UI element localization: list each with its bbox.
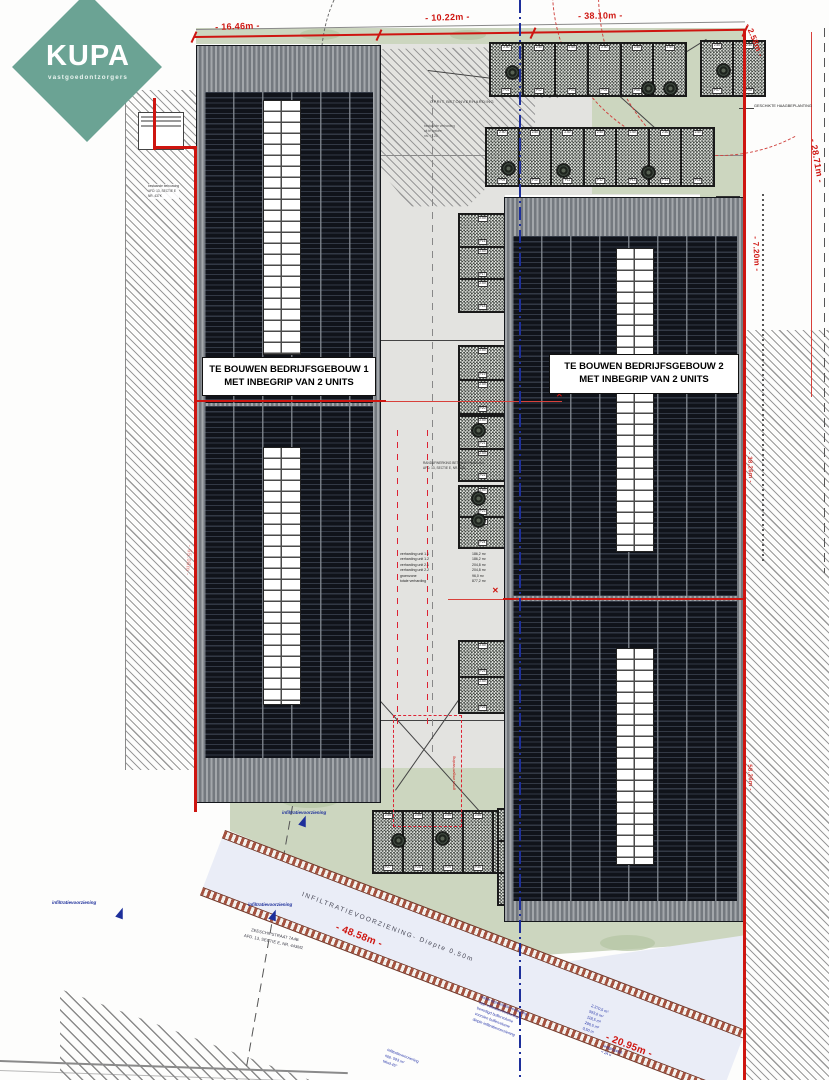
parking-stall: 2.50P30 (463, 811, 493, 873)
stall-id-chip: P11 (563, 178, 572, 184)
infiltration-note-3: infiltratievoorziening (52, 900, 96, 905)
stall-id-chip: P18 (478, 304, 488, 310)
stall-width-chip: 2.50 (477, 418, 487, 424)
beplanting-label: GESCHIKTE HAAGBEPLANTING (754, 104, 812, 108)
tree-icon (557, 164, 570, 177)
stall-id-chip: P14 (660, 178, 670, 184)
stall-id-chip: P22 (478, 473, 488, 479)
parking-stall: 2.50P10 (519, 128, 552, 186)
stall-width-chip: 2.50 (693, 130, 703, 136)
stall-width-chip: 2.50 (477, 216, 487, 222)
stall-width-chip: 2.50 (383, 813, 393, 819)
kupa-logo-brand: KUPA (42, 42, 134, 71)
dim-right-lower: - 58.26m - (746, 760, 753, 791)
site-plan-drawing: TE BOUWEN BEDRIJFSGEBOUW 1 MET INBEGRIP … (0, 0, 829, 1080)
building-2-label-line1: TE BOUWEN BEDRIJFSGEBOUW 2 (550, 361, 738, 374)
stall-id-chip: P04 (599, 88, 609, 94)
hatch-zone-bottomleft (60, 950, 310, 1080)
tree-icon (472, 424, 485, 437)
dim-right-mid: - 7.20m - (751, 236, 762, 272)
parking-stall: 2.50P03 (555, 43, 588, 96)
verge-note: grens wegverharding (452, 756, 458, 790)
left-note: bestaande bebouwingAFD. 13, SECTIE ENR. … (148, 184, 179, 199)
legend-values: 186,2 m²186,2 m²204,8 m²204,8 m²96,0 m²8… (472, 552, 486, 585)
building-1-label-line1: TE BOUWEN BEDRIJFSGEBOUW 1 (203, 364, 375, 377)
stall-width-chip: 2.50 (477, 281, 487, 287)
stall-id-chip: P30 (473, 865, 483, 871)
stall-id-chip: P24 (478, 540, 488, 546)
stall-id-chip: P21 (478, 441, 488, 447)
tree-icon (472, 492, 485, 505)
stall-id-chip: P01 (501, 88, 511, 94)
parking-stall: 2.50P09 (486, 128, 519, 186)
stall-width-chip: 2.50 (477, 451, 487, 457)
building-1-label-line2: MET INBEGRIP VAN 2 UNITS (203, 377, 375, 390)
stall-id-chip: P17 (478, 272, 488, 278)
parking-stall: 2.50P12 (584, 128, 617, 186)
parking-stall: 2.50P19 (459, 346, 506, 380)
parking-stall: 2.50P18 (459, 279, 506, 312)
parking-stall: 2.50P25 (459, 641, 506, 677)
dim-right-low: - 38.26m - (746, 452, 753, 483)
stall-id-chip: P20 (478, 406, 488, 412)
stall-id-chip: P05 (632, 88, 642, 94)
tree-icon (436, 832, 449, 845)
stall-width-chip: 2.50 (534, 45, 544, 51)
infiltration-note-2: infiltratievoorziening (248, 902, 292, 907)
parking-stall: 2.50P17 (459, 247, 506, 280)
building-2-label: TE BOUWEN BEDRIJFSGEBOUW 2 MET INBEGRIP … (549, 354, 739, 394)
stall-width-chip: 2.50 (665, 45, 675, 51)
stall-id-chip: P13 (628, 178, 638, 184)
pond-note-c: infiltratievoorzieningopp. 593 m²talud 4… (382, 1048, 420, 1076)
stall-width-chip: 2.50 (477, 348, 487, 354)
stall-width-chip: 2.50 (477, 679, 487, 685)
stall-width-chip: 2.50 (660, 130, 670, 136)
stall-id-chip: P26 (478, 705, 488, 711)
stall-id-chip: P28 (413, 865, 423, 871)
stall-width-chip: 2.50 (477, 382, 487, 388)
stall-id-chip: P29 (443, 865, 453, 871)
parking-group: 2.50P192.50P20 (458, 345, 507, 415)
stall-id-chip: P07 (712, 88, 722, 94)
stall-id-chip: P09 (497, 178, 507, 184)
stall-width-chip: 2.50 (595, 130, 605, 136)
tree-icon (642, 82, 655, 95)
stall-id-chip: P27 (383, 865, 393, 871)
skylight-strip (263, 100, 301, 355)
tree-icon (642, 166, 655, 179)
legend-left: verharding unit 1.1verharding unit 1.2ve… (400, 552, 429, 585)
parking-stall: 2.50P16 (459, 214, 506, 247)
stall-width-chip: 2.50 (632, 45, 642, 51)
dim-top-1: - 16.46m - (215, 20, 260, 32)
tree-icon (664, 82, 677, 95)
parking-stall: 2.50P20 (459, 380, 506, 414)
tree-icon (472, 514, 485, 527)
stall-id-chip: P12 (595, 178, 605, 184)
stall-id-chip: P25 (478, 669, 488, 675)
stall-width-chip: 2.50 (562, 130, 572, 136)
stall-width-chip: 2.50 (477, 643, 487, 649)
stall-id-chip: P10 (530, 178, 540, 184)
stall-width-chip: 2.50 (477, 249, 487, 255)
parking-group: 2.50P162.50P172.50P18 (458, 213, 507, 313)
dim-top-3: - 38.10m - (578, 10, 623, 21)
stall-width-chip: 2.50 (501, 45, 511, 51)
neighbour-parcel-right (746, 330, 829, 1080)
corridor-note: RANDAFWERKING BETONVERHARDINGAFD. 13, SE… (423, 461, 484, 471)
stall-width-chip: 2.50 (712, 43, 722, 49)
stall-width-chip: 2.50 (567, 45, 577, 51)
parking-stall: 2.50P15 (681, 128, 714, 186)
tree-icon (506, 66, 519, 79)
hatch-note: bestaande verhardinguit te brekenniv. +1… (424, 124, 455, 139)
stall-width-chip: 2.50 (599, 45, 609, 51)
stall-id-chip: P03 (567, 88, 577, 94)
parking-group: 2.50P252.50P26 (458, 640, 507, 714)
parking-stall: 2.50P04 (588, 43, 621, 96)
kupa-logo-tagline: vastgoedontzorgers (42, 74, 134, 81)
stall-width-chip: 2.50 (473, 813, 483, 819)
skylight-strip (616, 248, 654, 552)
parking-stall: 2.50P14 (649, 128, 682, 186)
parking-stall: 2.50P11 (551, 128, 584, 186)
parking-stall: 2.50P26 (459, 677, 506, 713)
stall-id-chip: P02 (534, 88, 544, 94)
stall-width-chip: 2.50 (627, 130, 637, 136)
stall-id-chip: P19 (478, 372, 488, 378)
parking-stall: 2.50P02 (523, 43, 556, 96)
skylight-strip (616, 648, 654, 865)
tree-icon (392, 834, 405, 847)
stall-width-chip: 2.50 (497, 130, 507, 136)
axis-line (519, 0, 521, 1080)
stall-id-chip: P16 (478, 239, 488, 245)
kupa-logo: KUPA vastgoedontzorgers (0, 0, 200, 170)
tree-icon (502, 162, 515, 175)
oprit-label: OPRIT BETONVERHARDING (430, 99, 494, 104)
dim-top-2: - 10.22m - (425, 11, 470, 23)
tree-icon (717, 64, 730, 77)
building-1-label: TE BOUWEN BEDRIJFSGEBOUW 1 MET INBEGRIP … (202, 357, 376, 396)
flow-arrow-icon (115, 906, 126, 919)
building-2-label-line2: MET INBEGRIP VAN 2 UNITS (550, 374, 738, 387)
stall-width-chip: 2.50 (530, 130, 540, 136)
stall-id-chip: P15 (693, 178, 703, 184)
skylight-strip (263, 447, 301, 705)
